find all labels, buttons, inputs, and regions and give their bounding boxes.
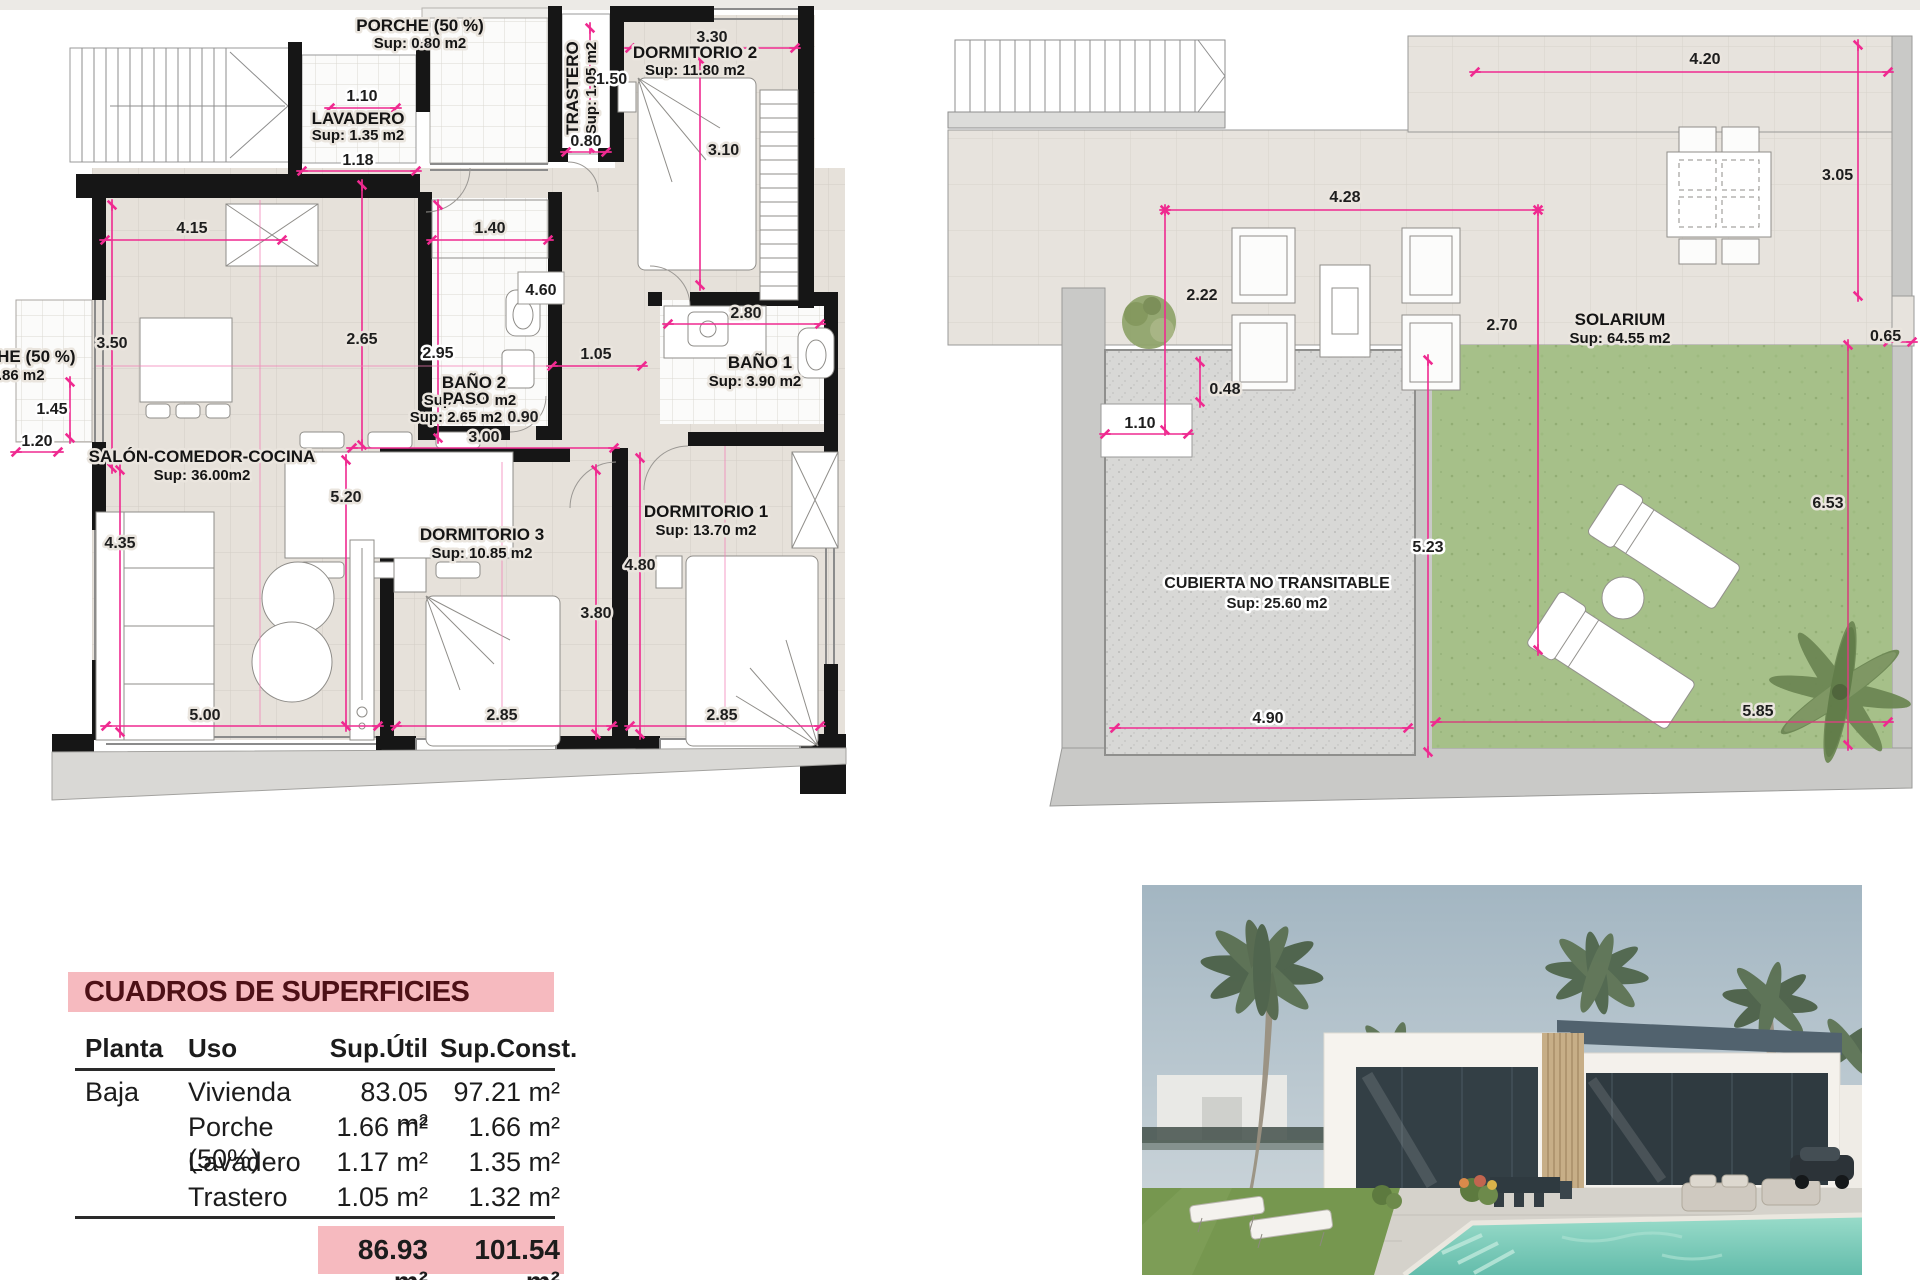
total-util: 86.93 m² <box>323 1234 428 1280</box>
dim-cub-h: 5.23 <box>1412 539 1443 556</box>
header-planta: Planta <box>85 1032 175 1064</box>
dim-tras-h: 1.50 <box>596 71 627 88</box>
room-sup-dorm2: Sup: 11.80 m2 <box>645 62 745 79</box>
dim-lawn-h: 6.53 <box>1812 495 1843 512</box>
dim-dorm1-h: 4.80 <box>624 557 655 574</box>
areas-table-header: Planta Uso Sup.Útil Sup.Const. <box>68 1032 554 1064</box>
dim-dorm2-w: 3.30 <box>696 29 727 46</box>
roof-plan: 4.20 3.05 4.28 2.22 2.70 0.65 0.48 1.10 … <box>900 0 1920 810</box>
cell-util: 1.05 m² <box>323 1181 428 1213</box>
cell-util: 1.17 m² <box>323 1146 428 1178</box>
dim-roof-porch-w: 1.10 <box>1124 415 1155 432</box>
dim-porche-left-h: 1.45 <box>36 401 67 418</box>
totals-row: 86.93 m² 101.54 m² <box>68 1234 554 1266</box>
room-label-lavadero: LAVADERO <box>312 109 405 128</box>
header-rule <box>75 1068 555 1071</box>
left-glass <box>1356 1067 1538 1189</box>
room-label-trastero: TRASTERO <box>563 41 582 135</box>
room-label-dorm1: DORMITORIO 1 <box>644 502 768 521</box>
dim-roof-step: 0.48 <box>1209 381 1240 398</box>
room-label-bano1: BAÑO 1 <box>728 352 792 372</box>
room-sup-salon: Sup: 36.00m2 <box>154 467 251 484</box>
room-sup-porche-top: Sup: 0.80 m2 <box>374 35 467 52</box>
dim-roof-notch: 0.65 <box>1870 328 1901 345</box>
dim-roof-right-h: 3.05 <box>1822 167 1853 184</box>
dim-kitchen-w: 4.15 <box>176 220 207 237</box>
table-row: Lavadero 1.17 m² 1.35 m² <box>68 1146 554 1178</box>
room-label-porche-left: PORCHE (50 %) <box>0 347 76 366</box>
room-sup-dorm3: Sup: 10.85 m2 <box>432 545 533 562</box>
dim-lav-bottom: 1.18 <box>342 152 373 169</box>
room-label-dorm3: DORMITORIO 3 <box>420 525 544 544</box>
dim-bottom-dorm1: 2.85 <box>706 707 737 724</box>
room-sup-bano1: Sup: 3.90 m2 <box>709 373 802 390</box>
dim-dorm2-h: 3.10 <box>708 142 739 159</box>
ground-floor-plan: PORCHE (50 %) Sup: 0.80 m2 1.10 LAVADERO… <box>0 0 900 810</box>
terrace-slab <box>52 748 846 800</box>
dim-paso-door: 1.05 <box>580 346 611 363</box>
dim-cub-w: 4.90 <box>1252 710 1283 727</box>
room-sup-solarium: Sup: 64.55 m2 <box>1570 330 1671 347</box>
dim-lawn-w: 5.85 <box>1742 703 1773 720</box>
dim-tras-w: 0.80 <box>570 133 601 150</box>
dim-porche-left-w: 1.20 <box>21 433 52 450</box>
dim-roof-top-w: 4.20 <box>1689 51 1720 68</box>
room-label-paso: PASO <box>443 389 490 408</box>
dim-bano1-w: 2.80 <box>730 305 761 322</box>
cell-planta: Baja <box>85 1076 175 1108</box>
bush <box>1122 295 1176 349</box>
dim-bottom-dorm3: 2.85 <box>486 707 517 724</box>
room-label-salon: SALÓN-COMEDOR-COCINA <box>89 447 316 466</box>
dim-bano2-top: 1.40 <box>474 220 505 237</box>
table-row: Porche (50%) 1.66 m² 1.66 m² <box>68 1111 554 1143</box>
room-sup-dorm1: Sup: 13.70 m2 <box>656 522 757 539</box>
dim-salon-top-left: 3.50 <box>96 335 127 352</box>
dim-bano2-h: 2.95 <box>422 345 453 362</box>
villa-render <box>1142 885 1862 1275</box>
cell-const: 1.32 m² <box>440 1181 560 1213</box>
dim-roof-mid-h: 2.70 <box>1486 317 1517 334</box>
table-row: Baja Vivienda 83.05 m² 97.21 m² <box>68 1076 554 1108</box>
room-label-cubierta: CUBIERTA NO TRANSITABLE <box>1164 575 1390 592</box>
room-sup-porche-left: Sup: 0.86 m2 <box>0 367 45 384</box>
cell-const: 97.21 m² <box>440 1076 560 1108</box>
dim-salon-len: 5.20 <box>330 489 361 506</box>
dim-salon-mid-h: 2.65 <box>346 331 377 348</box>
footer-rule <box>75 1216 555 1219</box>
room-sup-paso: Sup: 2.65 m2 <box>410 409 503 426</box>
room-label-dorm2: DORMITORIO 2 <box>633 43 757 62</box>
header-sup-util: Sup.Útil <box>323 1032 428 1064</box>
dim-salon-left: 4.35 <box>104 535 135 552</box>
dim-roof-inner-w: 4.28 <box>1329 189 1360 206</box>
dim-dorm2-wall: 4.60 <box>525 282 556 299</box>
roof-stairs <box>948 40 1225 128</box>
table-row: Trastero 1.05 m² 1.32 m² <box>68 1181 554 1213</box>
room-label-porche-top: PORCHE (50 %) <box>356 16 484 35</box>
areas-table-title: CUADROS DE SUPERFICIES <box>68 972 554 1012</box>
cell-const: 1.35 m² <box>440 1146 560 1178</box>
dim-dorm3-h: 3.80 <box>580 605 611 622</box>
architectural-plan-sheet: PORCHE (50 %) Sup: 0.80 m2 1.10 LAVADERO… <box>0 0 1920 1280</box>
dim-paso-side: 0.90 <box>507 409 538 426</box>
dim-bottom-salon: 5.00 <box>189 707 220 724</box>
total-const: 101.54 m² <box>440 1234 560 1280</box>
dim-roof-left-h: 2.22 <box>1186 287 1217 304</box>
dim-paso-w: 3.00 <box>468 429 499 446</box>
room-label-solarium: SOLARIUM <box>1575 310 1666 329</box>
cell-const: 1.66 m² <box>440 1111 560 1143</box>
dim-lav-top: 1.10 <box>346 88 377 105</box>
room-sup-cubierta: Sup: 25.60 m2 <box>1227 595 1328 612</box>
cell-util: 1.66 m² <box>323 1111 428 1143</box>
header-sup-const: Sup.Const. <box>440 1032 560 1064</box>
room-sup-trastero: Sup: 1.05 m2 <box>583 42 600 135</box>
room-sup-lavadero: Sup: 1.35 m2 <box>312 127 405 144</box>
